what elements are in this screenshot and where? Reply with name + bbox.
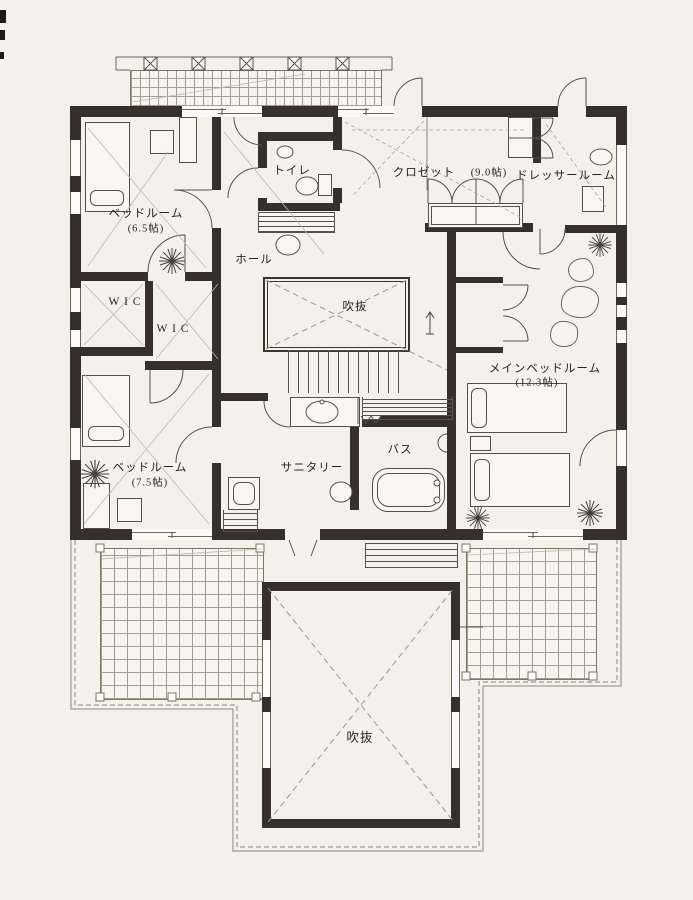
toilet-bowl: [296, 177, 318, 195]
wall-segment: [70, 176, 81, 192]
cabinet: [508, 117, 533, 158]
wall-segment: [212, 463, 221, 529]
wall-segment: [456, 347, 503, 353]
window: [451, 640, 460, 697]
stairs-flight1: [288, 350, 408, 393]
room-label-wic2: W I C: [157, 323, 190, 335]
wall-segment: [212, 277, 221, 427]
shower-fitting: [438, 434, 447, 452]
room-label-hall: ホール: [235, 251, 273, 267]
wall-segment: [616, 297, 627, 305]
wall-segment: [262, 591, 271, 640]
room-label-sanitary: サニタリー: [281, 459, 344, 475]
wall-segment: [451, 768, 460, 819]
wall-segment: [350, 424, 359, 510]
bathtub-inner: [377, 473, 440, 507]
edge-mark: [0, 30, 5, 40]
wall-segment: [258, 141, 267, 168]
pillow: [88, 426, 124, 441]
toilet-sink: [277, 146, 293, 158]
terrace-right-tiles: [466, 548, 597, 680]
wall-segment: [616, 106, 627, 145]
wall-segment: [70, 529, 132, 540]
hall-counter: [258, 212, 335, 233]
garden-stone: [550, 321, 578, 347]
edge-mark: [0, 52, 4, 59]
room-size-bedroom2: (7.5帖): [132, 475, 169, 490]
room-size-bedroom1: (6.5帖): [128, 221, 165, 236]
window: [262, 640, 271, 697]
toilet-tank: [318, 174, 332, 196]
wall-segment: [258, 132, 340, 141]
wall-segment: [70, 312, 81, 330]
wall-segment: [333, 117, 342, 150]
wall-segment: [258, 203, 340, 211]
wall-segment: [447, 353, 456, 529]
wall-segment: [616, 225, 627, 283]
wardrobe: [179, 117, 197, 163]
pillow: [90, 190, 124, 206]
wall-segment: [451, 591, 460, 640]
wall-segment: [262, 582, 460, 591]
wall-segment: [70, 460, 81, 540]
wall-segment: [81, 347, 153, 356]
wall-segment: [456, 277, 503, 283]
window: [616, 283, 627, 297]
wall-segment: [262, 106, 338, 117]
wall-segment: [262, 768, 271, 819]
room-label-toilet: トイレ: [273, 162, 311, 178]
wall-segment: [451, 697, 460, 712]
window: [70, 330, 81, 347]
sliding-door: [182, 106, 262, 117]
wall-segment: [333, 188, 342, 203]
wall-segment: [422, 106, 558, 117]
stool: [590, 149, 612, 165]
side-table: [117, 498, 142, 522]
window: [262, 712, 271, 768]
room-size-closet: (9.0帖): [471, 165, 508, 180]
wall-segment: [212, 117, 221, 190]
wall-segment: [447, 232, 456, 277]
stairs-flight2: [362, 397, 453, 420]
plant-icon: [588, 233, 611, 256]
room-label-closet: クロゼット: [393, 164, 456, 180]
room-label-bedroom2: ベッドルーム: [113, 459, 188, 475]
desk: [150, 130, 174, 154]
laundry-basket: [330, 482, 352, 502]
pillow: [471, 388, 487, 428]
exterior-steps: [365, 543, 458, 568]
plant-icon: [159, 248, 185, 274]
window: [70, 428, 81, 460]
wall-segment: [583, 529, 627, 540]
wall-segment: [616, 343, 627, 430]
room-label-bedroom1: ベッドルーム: [109, 205, 184, 221]
wall-segment: [70, 214, 81, 288]
window: [616, 330, 627, 343]
balcony-tiles: [130, 70, 382, 107]
window: [70, 288, 81, 312]
wall-segment: [320, 529, 483, 540]
edge-mark: [0, 10, 6, 23]
wall-segment: [362, 420, 453, 427]
wall-segment: [70, 106, 81, 140]
sliding-door: [132, 529, 212, 540]
stair-arrow-icon: [426, 312, 434, 334]
vanity: [290, 397, 360, 427]
washing-machine-drum: [233, 482, 255, 505]
nightstand: [470, 436, 491, 451]
window: [70, 140, 81, 176]
wall-segment: [533, 117, 541, 163]
window: [616, 430, 627, 466]
room-label-dresser: ドレッサールーム: [516, 167, 616, 183]
storage-bench-inner: [431, 206, 520, 225]
wall-segment: [81, 272, 148, 281]
garden-stone: [561, 286, 599, 318]
wall-segment: [565, 225, 616, 233]
garden-stone: [568, 258, 594, 282]
room-size-main-bedroom: (12.3帖): [516, 375, 559, 390]
void-upper-box: [263, 277, 410, 352]
wall-segment: [145, 361, 221, 370]
wall-segment: [145, 281, 153, 347]
window: [616, 305, 627, 317]
dresser-desk: [582, 186, 604, 212]
plant-icon: [577, 500, 603, 526]
window: [451, 712, 460, 768]
balcony-rail: [116, 57, 392, 70]
window: [616, 145, 627, 225]
terrace-left-tiles: [100, 548, 264, 700]
balcony-posts: [144, 57, 349, 70]
room-label-void-lower: 吹抜: [346, 727, 373, 746]
wall-segment: [70, 347, 81, 428]
sliding-door: [338, 106, 394, 117]
sliding-door: [483, 529, 583, 540]
room-label-wic1: W I C: [109, 296, 142, 308]
wall-segment: [221, 393, 268, 401]
room-label-bath: バス: [388, 441, 413, 457]
wall-segment: [447, 277, 456, 353]
window: [70, 192, 81, 214]
step-down: [223, 510, 258, 532]
wall-segment: [70, 106, 182, 117]
room-label-void-upper: 吹抜: [343, 298, 368, 314]
wall-segment: [262, 819, 460, 828]
chair: [276, 235, 300, 255]
wall-segment: [212, 228, 221, 277]
wall-segment: [616, 317, 627, 330]
pillow: [474, 459, 490, 501]
chest: [83, 483, 110, 529]
floor-plan: ベッドルーム (6.5帖) トイレ クロゼット (9.0帖) ドレッサールーム …: [0, 0, 693, 900]
wall-segment: [262, 697, 271, 712]
plant-icon: [466, 506, 489, 529]
